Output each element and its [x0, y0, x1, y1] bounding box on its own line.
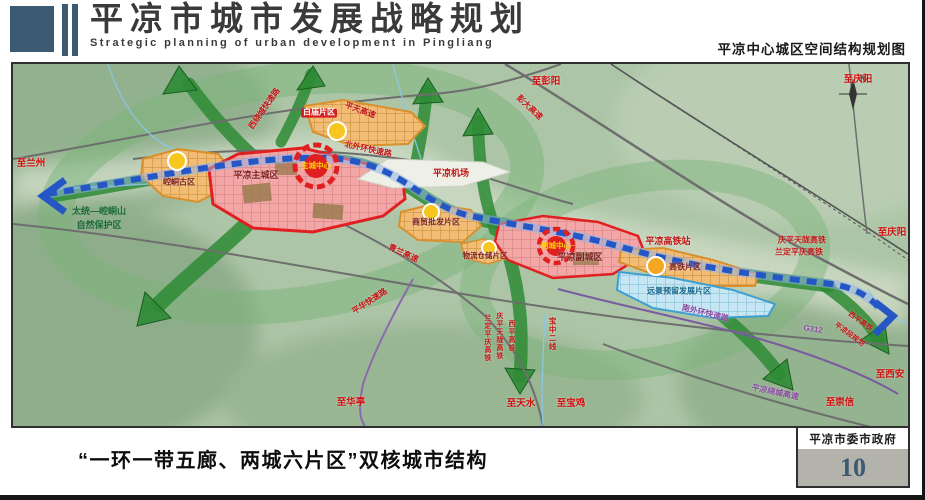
- page-title: 平凉市城市发展战略规划: [90, 1, 530, 37]
- compass-n-label: N: [860, 74, 867, 84]
- header-accent-bar: [62, 4, 68, 56]
- header: 平凉市城市发展战略规划 Strategic planning of urban …: [0, 0, 922, 62]
- slide-page: 平凉市城市发展战略规划 Strategic planning of urban …: [0, 0, 925, 500]
- node-baimiao: [328, 122, 346, 140]
- node-wuliu: [482, 241, 496, 255]
- header-logo-square: [10, 6, 54, 52]
- header-accent-bar: [72, 4, 78, 56]
- planning-map-svg: N: [13, 64, 908, 426]
- node-kongtong: [168, 152, 186, 170]
- planning-map: N 至兰州 西绕城快速路 至彭阳 至庆阳 彭大高速 平天高速 北外环快速路 白庙…: [11, 62, 910, 428]
- structure-caption: “一环一带五廊、两城六片区”双核城市结构: [11, 428, 796, 488]
- organization-name: 平凉市委市政府: [798, 428, 908, 449]
- page-number: 10: [798, 449, 908, 486]
- footer: “一环一带五廊、两城六片区”双核城市结构 平凉市委市政府 10: [11, 428, 910, 488]
- node-shangmao: [423, 204, 439, 220]
- node-gaotie: [647, 257, 665, 275]
- zone-shangmao: [399, 204, 481, 242]
- stamp-box: 平凉市委市政府 10: [796, 428, 910, 488]
- sub-center-core: [546, 236, 566, 256]
- main-center-core: [304, 154, 328, 178]
- bottom-border-bar: [0, 495, 922, 500]
- page-subtitle-en: Strategic planning of urban development …: [90, 37, 530, 49]
- map-title: 平凉中心城区空间结构规划图: [718, 38, 907, 58]
